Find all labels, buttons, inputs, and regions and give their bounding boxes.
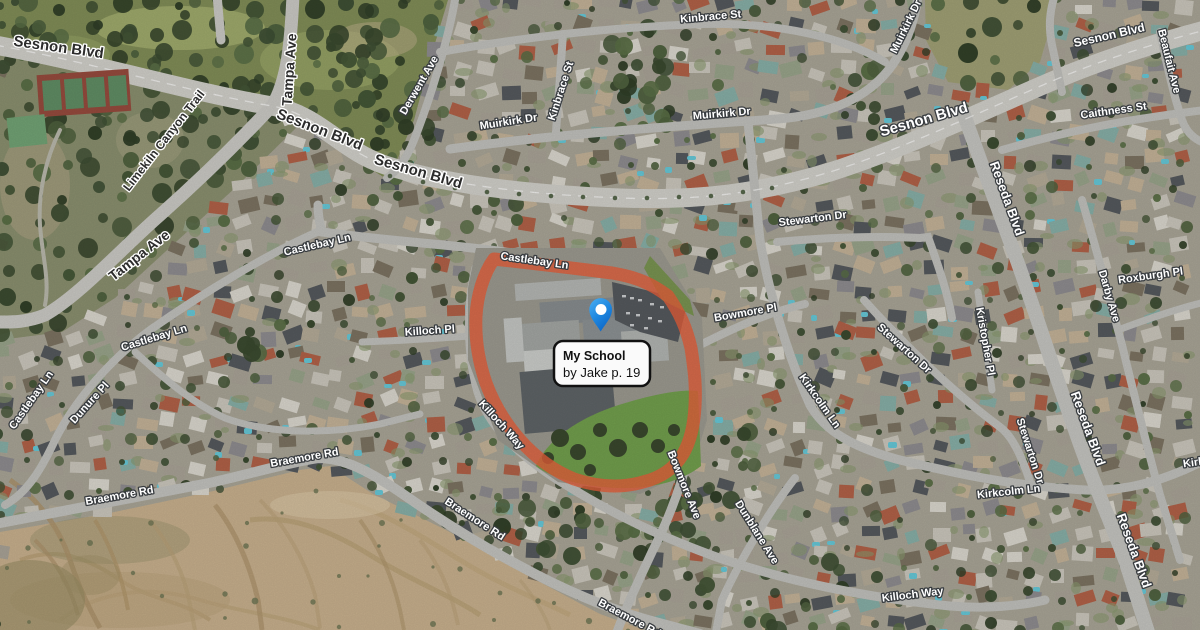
svg-text:My School: My School [563,349,626,363]
svg-text:by Jake p. 19: by Jake p. 19 [563,365,640,380]
